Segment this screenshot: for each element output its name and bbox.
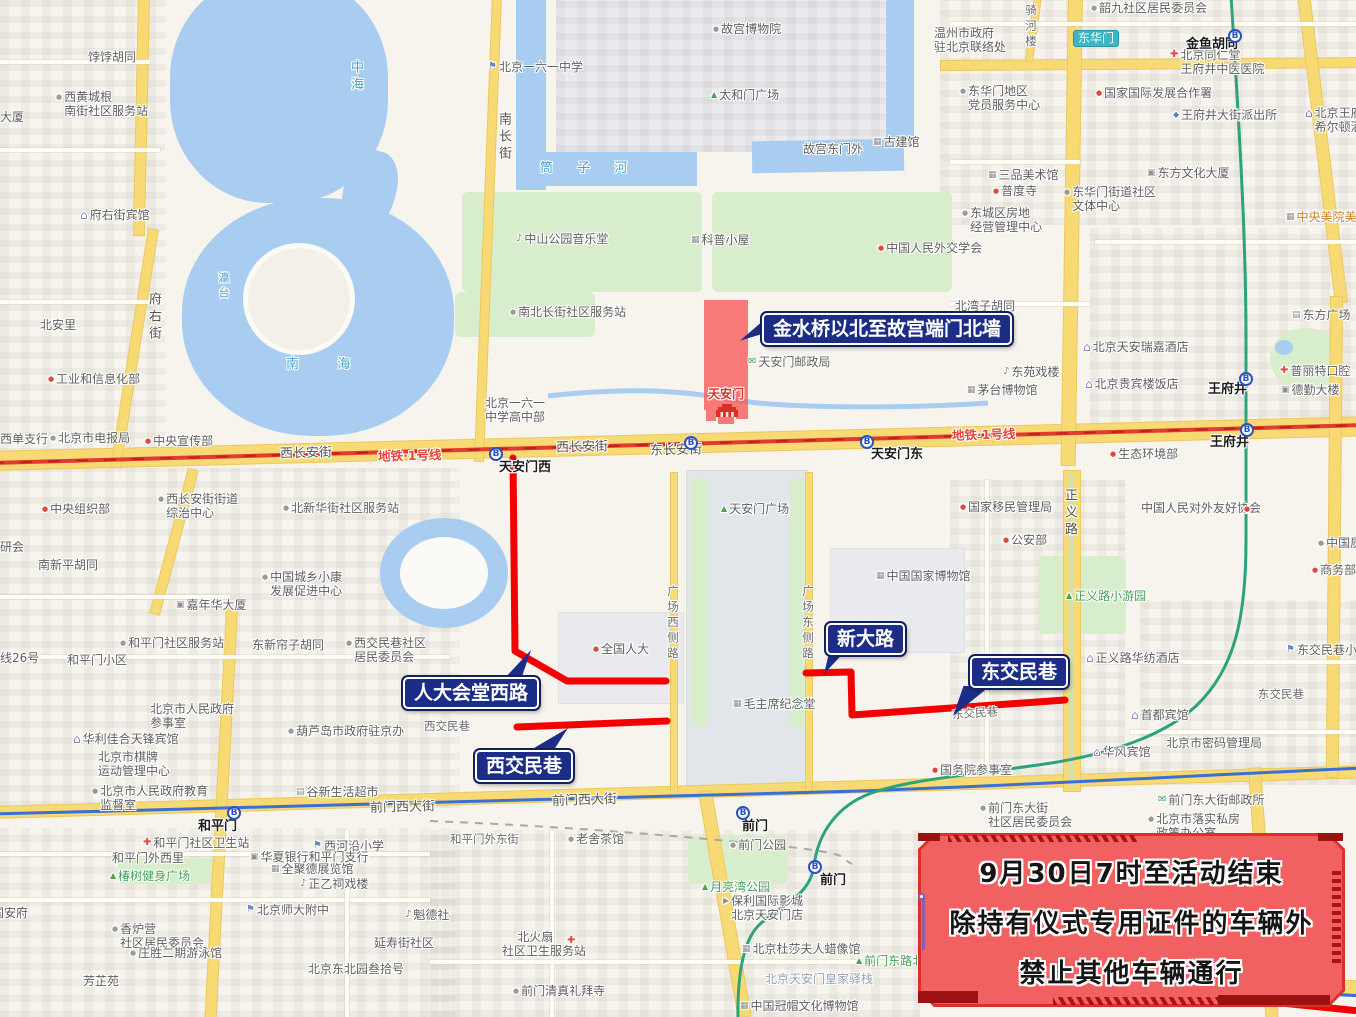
poi-text: 府右街宾馆	[90, 208, 150, 222]
poi-label[interactable]: 南新平胡同	[38, 558, 98, 572]
poi-label[interactable]: ●东华门地区 党员服务中心	[960, 84, 1040, 112]
poi-text: 庄胜二期游泳馆	[138, 946, 222, 960]
minor-road	[1095, 240, 1356, 244]
poi-label[interactable]: ▲椿树健身广场	[110, 869, 190, 883]
poi-text: 生态环境部	[1118, 447, 1178, 461]
map-label: 西交民巷	[424, 719, 470, 733]
sch-icon: ⚑	[488, 60, 497, 74]
poi-text: 北京市人民政府 参事室	[150, 702, 234, 730]
mus-icon: ▦	[733, 697, 742, 711]
minor-road	[950, 160, 1080, 164]
poi-label[interactable]: ●南北长街社区服务站	[510, 305, 626, 319]
poi-text: 王府井大街派出所	[1181, 108, 1277, 122]
poi-label[interactable]: ▲天安门广场	[721, 502, 789, 516]
dotr-icon: ●	[1003, 533, 1009, 547]
poi-text: 南新平胡同	[38, 558, 98, 572]
poi-label[interactable]: ●西交民巷社区 居民委员会	[346, 636, 426, 664]
poi-label[interactable]: ♪魁德社	[405, 908, 449, 922]
hotel-icon: ⌂	[1131, 708, 1139, 722]
poi-label[interactable]: ▲太和门广场	[711, 88, 779, 102]
dot-icon: ●	[513, 984, 519, 998]
poi-label[interactable]: 饽饽胡同	[88, 50, 136, 64]
dot-icon: ●	[120, 636, 126, 650]
dot-icon: ●	[56, 90, 62, 104]
poi-text: 东华门地区 党员服务中心	[968, 84, 1040, 112]
poi-label[interactable]: ✉天安门邮政局	[748, 355, 830, 369]
notice-decor-corner	[918, 833, 940, 841]
poi-label[interactable]: ⚑北京一六一中学	[488, 60, 583, 74]
poi-text: 普丽特口腔	[1290, 364, 1350, 378]
poi-text: 芳芷苑	[83, 974, 119, 988]
minor-road	[950, 22, 1356, 26]
poi-text: 嘉年华大厦	[187, 598, 247, 612]
hotel-icon: ⌂	[1085, 377, 1093, 391]
poi-text: 北京东北园叁拾号	[308, 962, 404, 976]
map-label: 前门西大街	[370, 800, 435, 816]
poi-label[interactable]: ●前门清真礼拜寺	[513, 984, 605, 998]
hotel-icon: ⌂	[1083, 340, 1091, 354]
poi-label[interactable]: ●故宫博物院	[713, 22, 781, 36]
poi-label[interactable]: 线26号	[0, 651, 39, 665]
notice-side-marker	[922, 898, 925, 950]
dotr-icon: ●	[993, 184, 999, 198]
dot-icon: ●	[960, 84, 966, 98]
dot-icon: ●	[713, 22, 719, 36]
mus-icon: ▦	[1286, 210, 1295, 224]
dot-icon: ●	[92, 784, 98, 798]
poi-label[interactable]: 芳芷苑	[83, 974, 119, 988]
minor-road	[0, 300, 160, 304]
poi-text: 国家国际发展合作署	[1104, 86, 1212, 100]
poi-text: 国家移民管理局	[968, 500, 1052, 514]
tree-icon: ▲	[702, 880, 708, 894]
poi-label[interactable]: ▤东方广场	[1292, 308, 1351, 322]
poi-text: 中央组织部	[50, 502, 110, 516]
mus-icon: ▦	[988, 168, 997, 182]
poi-text: 西交民巷社区 居民委员会	[354, 636, 426, 664]
moat-east	[886, 0, 914, 147]
poi-text: 毛主席纪念堂	[744, 697, 816, 711]
poi-text: 大厦	[0, 110, 24, 124]
poi-text: 太和门广场	[719, 88, 779, 102]
map-label: 南 海	[286, 358, 360, 372]
poi-label[interactable]: 大厦	[0, 110, 24, 124]
poi-label[interactable]: ✚北京同仁堂 王府井中医医院	[1170, 48, 1264, 76]
mus-icon: ▦	[740, 999, 749, 1013]
hotel-icon: ⌂	[1093, 745, 1101, 759]
poi-label[interactable]: 北湾子胡同	[955, 299, 1015, 313]
poi-text: 科普小屋	[702, 233, 750, 247]
poi-label[interactable]: ●庄胜二期游泳馆	[130, 946, 222, 960]
poi-label[interactable]: ✚普丽特口腔	[1280, 364, 1350, 378]
poi-text: 华利佳合天锋宾馆	[83, 732, 179, 746]
poi-text: 中国人民外交学会	[886, 241, 982, 255]
poi-label[interactable]: 延寿街社区	[374, 936, 434, 950]
poi-label[interactable]: ▣德勤大楼	[1281, 383, 1340, 397]
sch-icon: ⚑	[1286, 643, 1295, 657]
dot-icon: ●	[288, 724, 294, 738]
notice-side-dot	[918, 893, 925, 900]
poi-label[interactable]: 温州市政府 驻北京联络处	[934, 26, 1006, 54]
metro-station-icon[interactable]: B	[736, 806, 750, 820]
poi-label[interactable]: 西单支行	[0, 432, 48, 446]
poi-text: 故宫博物院	[721, 22, 781, 36]
notice-decor-corner	[1318, 833, 1343, 841]
poi-label[interactable]: ▤谷新生活超市	[296, 785, 379, 799]
blocks-zone	[0, 828, 455, 1017]
poi-text: 北湾子胡同	[955, 299, 1015, 313]
poi-label[interactable]: ●中央宣传部	[145, 434, 213, 448]
poi-label[interactable]: ⌂华风宾馆	[1093, 745, 1151, 759]
dot-icon: ●	[346, 636, 352, 650]
poi-text: 正乙祠戏楼	[308, 877, 368, 891]
poi-label[interactable]: ⌂北京贵宾楼饭店	[1085, 377, 1179, 391]
poi-label[interactable]: 北安里	[40, 318, 76, 332]
poi-text: 前门清真礼拜寺	[521, 984, 605, 998]
poi-text: 华风宾馆	[1103, 745, 1151, 759]
hotel-icon: ⌂	[80, 208, 88, 222]
post-icon: ✉	[748, 355, 756, 369]
poi-text: 北京市密码管理局	[1166, 736, 1262, 750]
metro-station-icon[interactable]: B	[1239, 372, 1253, 386]
poi-label[interactable]: ●中国城乡小康 发展促进中心	[262, 570, 342, 598]
poi-label[interactable]: ▦中国国家博物馆	[876, 569, 971, 583]
poi-label[interactable]: ⌂华利佳合天锋宾馆	[73, 732, 179, 746]
poi-text: 三品美术馆	[999, 168, 1059, 182]
pond-small	[1275, 340, 1293, 355]
poi-label[interactable]: ●中国质量	[1318, 536, 1356, 550]
map-label: 和平门外东街	[450, 832, 519, 846]
dotr-icon: ●	[960, 500, 966, 514]
map-label: 地铁·1号线	[952, 427, 1016, 443]
poi-label[interactable]: ▦毛主席纪念堂	[733, 697, 816, 711]
poi-label[interactable]: ●老舍茶馆	[568, 832, 624, 846]
dotr-icon: ●	[1244, 502, 1250, 516]
dot-icon: ●	[730, 838, 736, 852]
poi-label[interactable]: ▦中国冠帽文化博物馆	[740, 999, 859, 1013]
poi-label[interactable]: ●西黄城根 南街社区服务站	[56, 90, 148, 118]
hosp-icon: ✚	[567, 934, 575, 948]
annotation-callout: 西交民巷	[475, 750, 573, 782]
poi-text: 东苑戏楼	[1011, 365, 1059, 379]
blocks-zone	[1140, 600, 1356, 785]
map-label: 西长安街	[556, 440, 608, 455]
poi-label[interactable]: ▣东方文化大厦	[1147, 166, 1230, 180]
station-label: 前门	[820, 874, 846, 888]
poi-text: 中山公园音乐堂	[524, 232, 608, 246]
poi-text: 魁德社	[413, 908, 449, 922]
map-label: 地铁·1号线	[378, 448, 442, 464]
poi-label[interactable]: 中国人民对外友好协会	[1141, 501, 1261, 515]
hosp-icon: ✚	[143, 836, 151, 850]
poi-label[interactable]: ●和平门社区服务站	[120, 636, 224, 650]
dotr-icon: ●	[42, 502, 48, 516]
ncpa-dome	[400, 537, 488, 609]
poi-text: 葫芦岛市政府驻京办	[296, 724, 404, 738]
poi-label[interactable]: ●西长安街街道 综治中心	[158, 492, 238, 520]
map-label: 广场东侧路	[801, 585, 815, 663]
poi-label[interactable]: 北京市人民政府 参事室	[150, 702, 234, 730]
poi-label[interactable]: ●国家移民管理局	[960, 500, 1052, 514]
minor-road	[0, 898, 430, 902]
poi-label[interactable]: ▣嘉年华大厦	[176, 598, 247, 612]
poi-label[interactable]: 北京市密码管理局	[1166, 736, 1262, 750]
map-label: 前门西大街	[552, 793, 617, 809]
poi-label[interactable]: ●前门公园	[730, 838, 786, 852]
poi-label[interactable]: ●国家国际发展合作署	[1096, 86, 1212, 100]
poi-text: 古建馆	[884, 135, 920, 149]
notice-decor-hatch	[948, 835, 1138, 842]
poi-label[interactable]: ●中国人民外交学会	[878, 241, 982, 255]
poi-label[interactable]: 和平门外西里	[112, 851, 184, 865]
dotr-icon: ●	[1312, 563, 1318, 577]
poi-label[interactable]: ●葫芦岛市政府驻京办	[288, 724, 404, 738]
poi-text: 北京市棋牌 运动管理中心	[98, 750, 170, 778]
poi-text: 线26号	[0, 651, 39, 665]
poi-text: 天安门邮政局	[758, 355, 830, 369]
blocks-zone	[430, 830, 920, 1017]
poi-label[interactable]: ▦三品美术馆	[988, 168, 1059, 182]
poi-label[interactable]: 和平门小区	[67, 653, 127, 667]
poi-label[interactable]: ●全国人大	[593, 642, 649, 656]
map-canvas[interactable]: 天安门 9月30日7时至活动结束除持有仪式专用证件的车辆外禁止其他车辆通行 饽饽…	[0, 0, 1356, 1017]
poi-label[interactable]: ⚑北京师大附中	[246, 903, 329, 917]
dot-icon: ●	[112, 922, 118, 936]
map-label: 府右街	[146, 292, 160, 343]
tree-icon: ▲	[856, 954, 862, 968]
map-label: 骑河楼	[1024, 4, 1038, 51]
poi-label[interactable]: ▲月亮湾公园	[702, 880, 770, 894]
poi-label[interactable]: ●	[1244, 502, 1252, 516]
metro-station-icon[interactable]: B	[489, 447, 503, 461]
poi-label[interactable]: ●国务院参事室	[932, 763, 1012, 777]
poi-label[interactable]: ⌂府右街宾馆	[80, 208, 150, 222]
poi-text: 东方广场	[1303, 308, 1351, 322]
poi-text: 老舍茶馆	[576, 832, 624, 846]
annotation-callout: 金水桥以北至故宫端门北墙	[762, 313, 1012, 345]
poi-text: 故宫东门外	[803, 142, 863, 156]
poi-label[interactable]: ⌂北京王府井 希尔顿酒店	[1305, 106, 1356, 134]
dotr-icon: ●	[1110, 447, 1116, 461]
dotr-icon: ●	[593, 642, 599, 656]
poi-label[interactable]: ✚和平门社区卫生站	[143, 836, 249, 850]
poi-text: 公安部	[1011, 533, 1047, 547]
metro-station-icon[interactable]: B	[227, 806, 241, 820]
minor-road	[1130, 730, 1356, 734]
notice-line: 禁止其他车辆通行	[918, 953, 1345, 990]
poi-label[interactable]: ▦科普小屋	[691, 233, 750, 247]
station-label: 前门	[742, 820, 768, 834]
nanhai-island	[243, 243, 355, 355]
poi-label[interactable]: ⚑东交民巷小学	[1286, 643, 1356, 657]
mus-icon: ▦	[742, 942, 751, 956]
poi-label[interactable]: ▦中央美院美术馆	[1286, 210, 1356, 224]
hotel-icon: ⌂	[73, 732, 81, 746]
bank-icon: ▣	[250, 850, 259, 864]
poi-label[interactable]: ●中央组织部	[42, 502, 110, 516]
poi-label[interactable]: ●东华门街道社区 文体中心	[1064, 185, 1156, 213]
poi-label[interactable]: ●工业和信息化部	[48, 372, 140, 386]
poi-text: 西长安街街道 综治中心	[166, 492, 238, 520]
dotr-icon: ●	[145, 434, 151, 448]
poi-label[interactable]: ⌂首都宾馆	[1131, 708, 1189, 722]
square-green-west	[690, 478, 708, 728]
poi-label[interactable]: 东新帘子胡同	[252, 638, 324, 652]
poi-label[interactable]: ●北京市电报局	[50, 431, 130, 445]
poi-text: 北京市电报局	[58, 431, 130, 445]
poi-text: 茅台博物馆	[978, 383, 1038, 397]
metro-station-icon[interactable]: B	[1228, 29, 1242, 43]
poi-label[interactable]: ●生态环境部	[1110, 447, 1178, 461]
poi-text: 东华门街道社区 文体中心	[1072, 185, 1156, 213]
poi-text: 中国质量	[1326, 536, 1356, 550]
dot-icon: ●	[130, 946, 136, 960]
poi-text: 南北长街社区服务站	[518, 305, 626, 319]
poi-text: 北京一六一中学	[499, 60, 583, 74]
poi-text: 和平门社区卫生站	[153, 836, 249, 850]
thea-icon: ♪	[1003, 365, 1009, 379]
map-label: 南长街	[496, 112, 510, 163]
poi-label[interactable]: 国安府	[0, 906, 28, 920]
poi-label[interactable]: 研会	[0, 540, 24, 554]
poi-label[interactable]: ♪中山公园音乐堂	[516, 232, 608, 246]
shop-icon: ▤	[296, 785, 305, 799]
metro-station-icon[interactable]: B	[860, 435, 874, 449]
poi-text: 中国冠帽文化博物馆	[751, 999, 859, 1013]
poi-text: 和平门社区服务站	[128, 636, 224, 650]
annotation-callout: 人大会堂西路	[403, 677, 539, 709]
mus-icon: ▦	[691, 233, 700, 247]
poi-label[interactable]: ▦北京杜莎夫人蜡像馆	[742, 942, 861, 956]
poi-label[interactable]: ▦茅台博物馆	[967, 383, 1038, 397]
mus-icon: ▦	[967, 383, 976, 397]
poi-text: 前门东大街邮政所	[1168, 793, 1264, 807]
pol-icon: ◆	[1173, 108, 1179, 122]
poi-label[interactable]: ◆王府井大街派出所	[1173, 108, 1277, 122]
poi-label[interactable]: ♪东苑戏楼	[1003, 365, 1059, 379]
tiananmen-gate-icon	[716, 402, 738, 421]
poi-label[interactable]: 北京东北园叁拾号	[308, 962, 404, 976]
poi-label[interactable]: ⌂北京天安瑞嘉酒店	[1083, 340, 1189, 354]
poi-label[interactable]: ♪正乙祠戏楼	[300, 877, 368, 891]
poi-text: 前门公园	[738, 838, 786, 852]
poi-text: 国安府	[0, 906, 28, 920]
poi-label[interactable]: 故宫东门外	[803, 142, 863, 156]
poi-text: 月亮湾公园	[710, 880, 770, 894]
poi-text: 国务院参事室	[940, 763, 1012, 777]
poi-label[interactable]: ▦全聚德展览馆	[271, 862, 354, 876]
dotr-icon: ●	[932, 763, 938, 777]
poi-label[interactable]: ●北新华街社区服务站	[283, 501, 399, 515]
metro-station-icon[interactable]: B	[808, 860, 822, 874]
poi-text: 普度寺	[1001, 184, 1037, 198]
shop-icon: ▤	[1292, 308, 1301, 322]
map-label: 广场西侧路	[666, 585, 680, 663]
poi-text: 首都宾馆	[1141, 708, 1189, 722]
dot-icon: ●	[510, 305, 516, 319]
poi-label[interactable]: ▦古建馆	[873, 135, 920, 149]
poi-text: 椿树健身广场	[118, 869, 190, 883]
minor-road	[0, 148, 160, 152]
tiananmen-label: 天安门	[708, 387, 744, 401]
poi-text: 商务部	[1320, 563, 1356, 577]
dot-icon: ●	[1091, 1, 1097, 15]
poi-label[interactable]: ●东城区房地 经营管理中心	[962, 206, 1042, 234]
metro-station-icon[interactable]: B	[684, 436, 698, 450]
bank-icon: ▣	[1147, 166, 1156, 180]
dotr-icon: ●	[1096, 86, 1102, 100]
notice-decor-corner	[918, 991, 978, 1003]
tree-icon: ▲	[1066, 589, 1072, 603]
hosp-icon: ✚	[1280, 364, 1288, 378]
poi-text: 谷新生活超市	[307, 785, 379, 799]
poi-text: 北京王府井 希尔顿酒店	[1315, 106, 1356, 134]
poi-text: 天安门广场	[729, 502, 789, 516]
mus-icon: ▦	[271, 862, 280, 876]
poi-label[interactable]: ✚	[567, 934, 577, 948]
map-label: 东交民巷	[1258, 687, 1304, 701]
poi-text: 前门东大街 社区居民委员会	[988, 801, 1072, 829]
poi-label[interactable]: 北京一六一 中学高中部	[485, 396, 545, 424]
poi-label[interactable]: ⌂正义路华纺酒店	[1086, 651, 1180, 665]
poi-text: 北京天安门皇家驿栈	[765, 972, 873, 986]
poi-text: 中国城乡小康 发展促进中心	[270, 570, 342, 598]
poi-text: 北京同仁堂 王府井中医医院	[1180, 48, 1264, 76]
metro-station-icon[interactable]: B	[1240, 423, 1254, 437]
dot-icon: ●	[980, 801, 986, 815]
poi-text: 东城区房地 经营管理中心	[970, 206, 1042, 234]
poi-label[interactable]: ●公安部	[1003, 533, 1047, 547]
thea-icon: ♪	[300, 877, 306, 891]
poi-text: 保利国际影城 北京天安门店	[731, 894, 803, 922]
poi-label[interactable]: 北京市棋牌 运动管理中心	[98, 750, 170, 778]
restricted-route-西交民巷	[517, 721, 667, 727]
poi-text: 正义路小游园	[1074, 589, 1146, 603]
poi-label[interactable]: ●普度寺	[993, 184, 1037, 198]
dot-icon: ●	[962, 206, 968, 220]
traffic-notice: 9月30日7时至活动结束除持有仪式专用证件的车辆外禁止其他车辆通行	[918, 833, 1345, 1007]
map-label: 中海	[348, 60, 362, 94]
station-label: 王府井	[1210, 436, 1249, 450]
tree-icon: ▲	[721, 502, 727, 516]
notice-decor-corner	[1218, 995, 1330, 1005]
poi-label[interactable]: ●商务部	[1312, 563, 1356, 577]
poi-label[interactable]: 北京天安门皇家驿栈	[765, 972, 873, 986]
poi-label[interactable]: ▲正义路小游园	[1066, 589, 1146, 603]
notice-line: 9月30日7时至活动结束	[918, 853, 1345, 890]
poi-label[interactable]: ●北京市人民政府教育 监督室	[92, 784, 208, 812]
poi-text: 东方文化大厦	[1158, 166, 1230, 180]
poi-label[interactable]: ✉前门东大街邮政所	[1158, 793, 1264, 807]
station-label: 天安门西	[499, 461, 551, 475]
poi-label[interactable]: ▶保利国际影城 北京天安门店	[723, 894, 803, 922]
poi-text: 温州市政府 驻北京联络处	[934, 26, 1006, 54]
poi-label[interactable]: ●前门东大街 社区居民委员会	[980, 801, 1072, 829]
minor-road	[985, 480, 989, 775]
hotel-icon: ⌂	[1305, 106, 1313, 120]
map-label: 西长安街	[280, 446, 332, 461]
poi-text: 研会	[0, 540, 24, 554]
poi-label[interactable]: ●韶九社区居民委员会	[1091, 1, 1207, 15]
dotr-icon: ●	[48, 372, 54, 386]
mus-icon: ▦	[873, 135, 882, 149]
tree-icon: ▲	[711, 88, 717, 102]
poi-text: 北新华街社区服务站	[291, 501, 399, 515]
poi-text: 中国人民对外友好协会	[1141, 501, 1261, 515]
annotation-callout: 东交民巷	[970, 656, 1068, 688]
dot-icon: ●	[568, 832, 574, 846]
thea-icon: ♪	[516, 232, 522, 246]
